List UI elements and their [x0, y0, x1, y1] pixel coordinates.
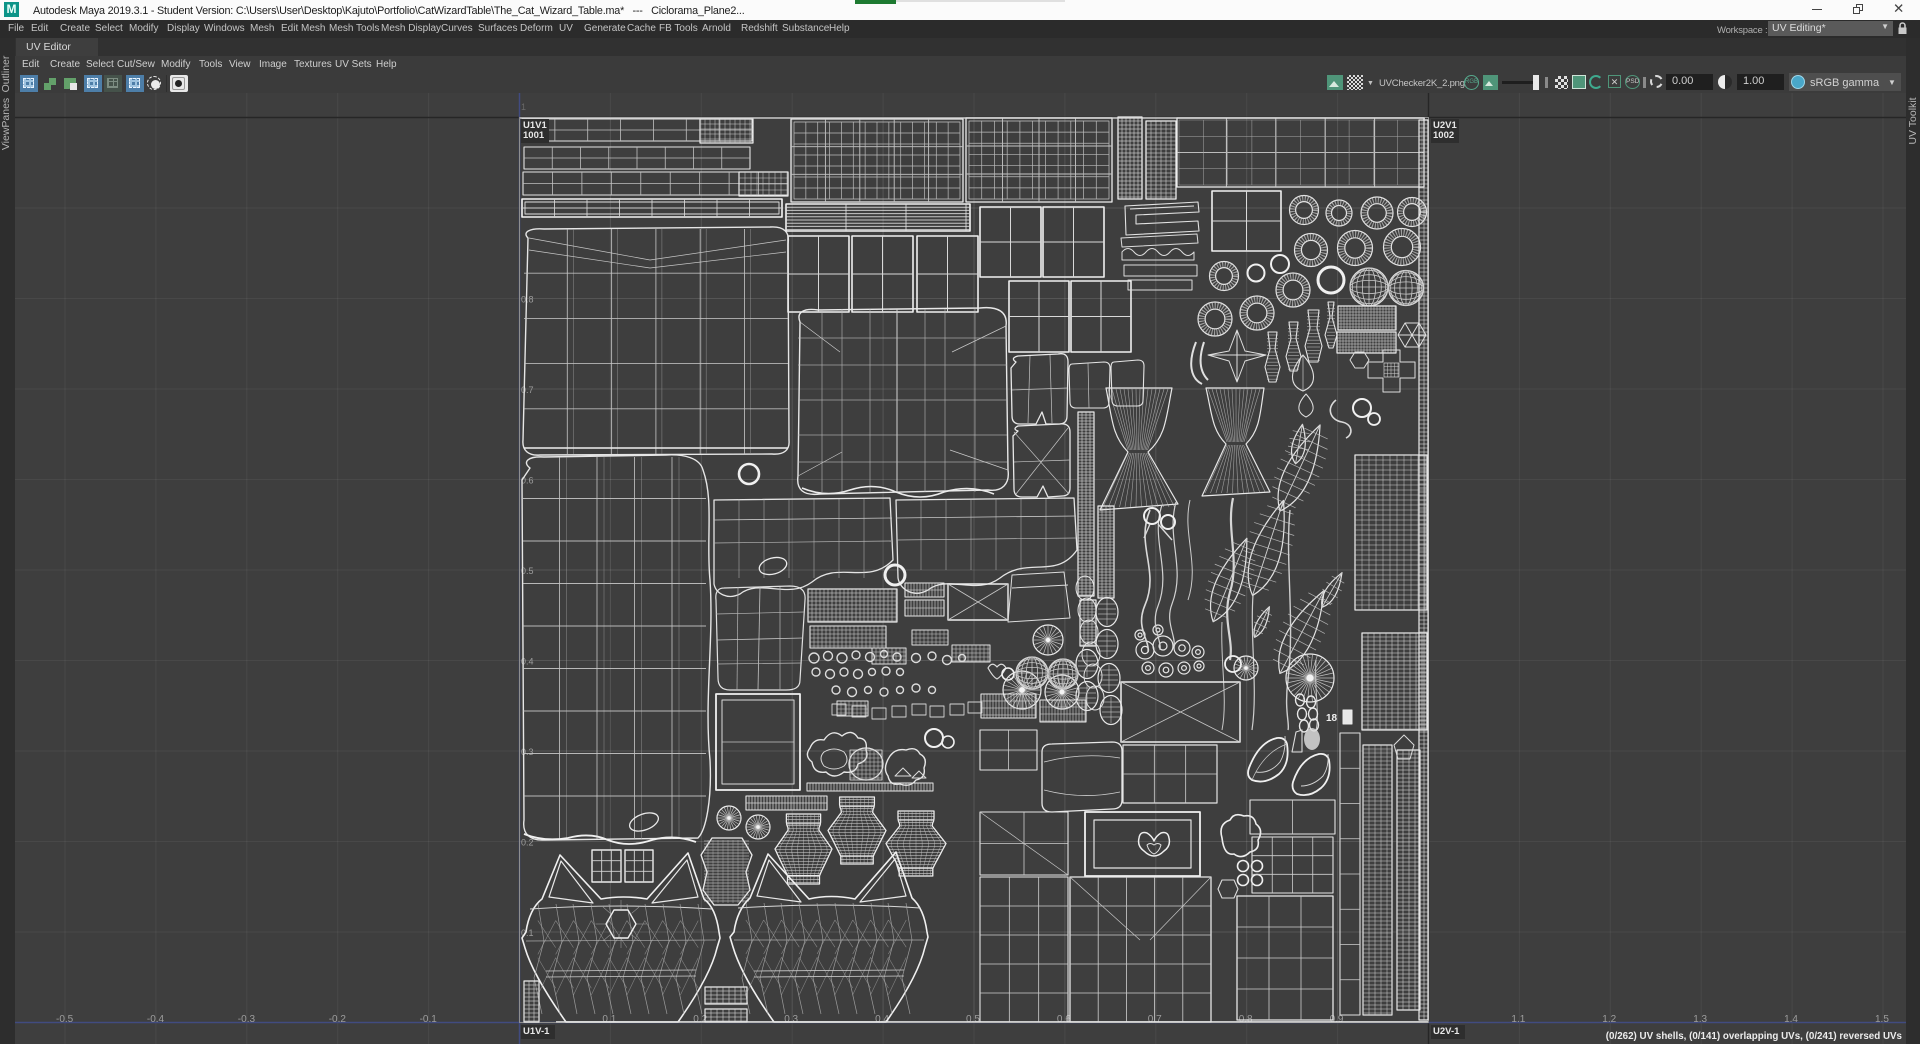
- svg-text:U1V-1: U1V-1: [523, 1026, 550, 1037]
- svg-text:1: 1: [521, 102, 526, 112]
- svg-text:-0.2: -0.2: [329, 1014, 347, 1025]
- svg-text:1.2: 1.2: [1602, 1014, 1616, 1025]
- svg-text:1002: 1002: [1433, 130, 1454, 141]
- svg-text:-0.1: -0.1: [420, 1014, 438, 1025]
- svg-text:(0/262) UV shells, (0/141) ove: (0/262) UV shells, (0/141) overlapping U…: [1606, 1031, 1903, 1042]
- svg-text:0.1: 0.1: [602, 1014, 616, 1025]
- svg-text:U2V-1: U2V-1: [1433, 1026, 1460, 1037]
- svg-text:0.5: 0.5: [966, 1014, 980, 1025]
- svg-text:1.3: 1.3: [1693, 1014, 1707, 1025]
- svg-text:0.2: 0.2: [521, 838, 534, 848]
- svg-text:18: 18: [1326, 713, 1338, 724]
- svg-text:-0.5: -0.5: [56, 1014, 74, 1025]
- svg-text:0.6: 0.6: [1057, 1014, 1071, 1025]
- svg-text:-0.4: -0.4: [147, 1014, 165, 1025]
- svg-text:1.4: 1.4: [1784, 1014, 1798, 1025]
- svg-text:0.7: 0.7: [521, 385, 534, 395]
- svg-text:1001: 1001: [523, 130, 545, 141]
- svg-text:0.3: 0.3: [521, 747, 534, 757]
- svg-text:0.6: 0.6: [521, 476, 534, 486]
- svg-text:1.5: 1.5: [1875, 1014, 1889, 1025]
- svg-text:-0.3: -0.3: [238, 1014, 256, 1025]
- svg-text:1.1: 1.1: [1511, 1014, 1525, 1025]
- svg-text:0.3: 0.3: [784, 1014, 798, 1025]
